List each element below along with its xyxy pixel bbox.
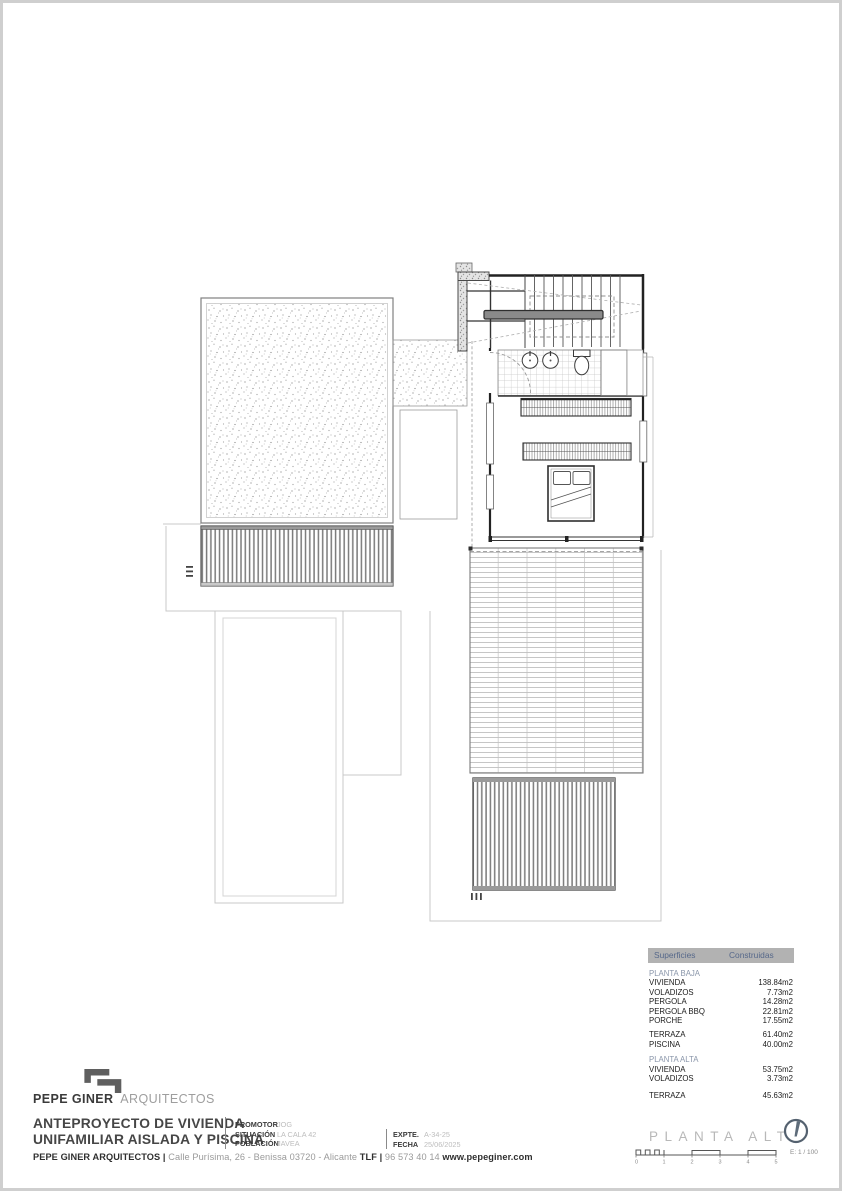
brand-name: PEPE GINER ARQUITECTOS: [33, 1092, 215, 1106]
fecha-row: FECHA25/06/2025: [393, 1140, 461, 1150]
stair-handrail: [484, 311, 603, 320]
window-left-1: [487, 403, 494, 464]
drawing-sheet: Superficies Construidas PLANTA BAJA VIVI…: [0, 0, 842, 1191]
svg-text:4: 4: [746, 1160, 749, 1166]
pillow: [573, 472, 590, 485]
svg-text:2: 2: [690, 1160, 693, 1166]
floor-plan-drawing: [153, 253, 673, 943]
table-row: VOLADIZOS3.73m2: [648, 1074, 794, 1083]
expte-row: EXPTE.A-34-25: [393, 1130, 461, 1140]
areas-table: Superficies Construidas PLANTA BAJA VIVI…: [648, 948, 794, 1101]
flat-roof-gravel: [201, 298, 393, 523]
titleblock-divider-2: [386, 1129, 387, 1149]
shower: [601, 350, 627, 396]
svg-text:0: 0: [635, 1160, 638, 1166]
table-row: TERRAZA45.63m2: [648, 1091, 794, 1100]
table-row: PERGOLA BBQ22.81m2: [648, 1007, 794, 1016]
brand-name-strong: PEPE GINER: [33, 1092, 113, 1106]
footer-address-line: PEPE GINER ARQUITECTOS | Calle Purísima,…: [33, 1152, 533, 1162]
poblacion-row: POBLACIÓNJAVEA: [235, 1139, 316, 1149]
pillow: [554, 472, 571, 485]
bathroom: [490, 350, 643, 396]
pergola-louvers-bottom: [471, 778, 615, 900]
bed: [548, 466, 594, 521]
brand-logo-icon: [78, 1069, 124, 1093]
project-info-block: PROMOTORJOG SITUACIÓNLA CALA 42 POBLACIÓ…: [235, 1120, 316, 1149]
staircase: [456, 263, 643, 351]
areas-table-col1: Superficies: [654, 950, 695, 960]
brand-name-light: ARQUITECTOS: [120, 1092, 214, 1106]
north-compass-icon: [781, 1117, 811, 1147]
roof-lower-section: [400, 410, 457, 519]
window-left-2: [487, 475, 494, 509]
pergola-louvers-left: [186, 526, 393, 586]
table-row: VIVIENDA138.84m2: [648, 978, 794, 987]
table-row: PLANTA ALTA: [648, 1055, 794, 1064]
table-row: VIVIENDA53.75m2: [648, 1065, 794, 1074]
terrace-decking: [469, 547, 644, 774]
table-row: PISCINA40.00m2: [648, 1040, 794, 1049]
table-row: PORCHE17.55m2: [648, 1016, 794, 1025]
project-title: ANTEPROYECTO DE VIVIENDA UNIFAMILIAR AIS…: [33, 1116, 264, 1147]
table-row: PLANTA BAJA: [648, 969, 794, 978]
svg-text:3: 3: [718, 1160, 721, 1166]
areas-table-header: Superficies Construidas: [648, 948, 794, 963]
situacion-row: SITUACIÓNLA CALA 42: [235, 1130, 316, 1140]
scale-bar: 0 1 2 3 4 5: [634, 1145, 780, 1165]
scale-label: E: 1 / 100: [790, 1149, 818, 1156]
project-title-line1: ANTEPROYECTO DE VIVIENDA: [33, 1116, 264, 1132]
gravel-strip: [393, 340, 467, 406]
svg-text:5: 5: [774, 1160, 777, 1166]
promotor-row: PROMOTORJOG: [235, 1120, 316, 1130]
toilet: [574, 350, 591, 357]
areas-table-col2: Construidas: [729, 948, 774, 963]
project-title-line2: UNIFAMILIAR AISLADA Y PISCINA: [33, 1132, 264, 1148]
table-row: TERRAZA61.40m2: [648, 1030, 794, 1039]
table-row: VOLADIZOS7.73m2: [648, 988, 794, 997]
expte-info-block: EXPTE.A-34-25 FECHA25/06/2025: [393, 1130, 461, 1149]
titleblock-divider-1: [225, 1117, 226, 1149]
window-right-2: [640, 421, 647, 462]
table-row: PERGOLA14.28m2: [648, 997, 794, 1006]
wardrobes: [521, 399, 631, 461]
svg-text:1: 1: [662, 1160, 665, 1166]
